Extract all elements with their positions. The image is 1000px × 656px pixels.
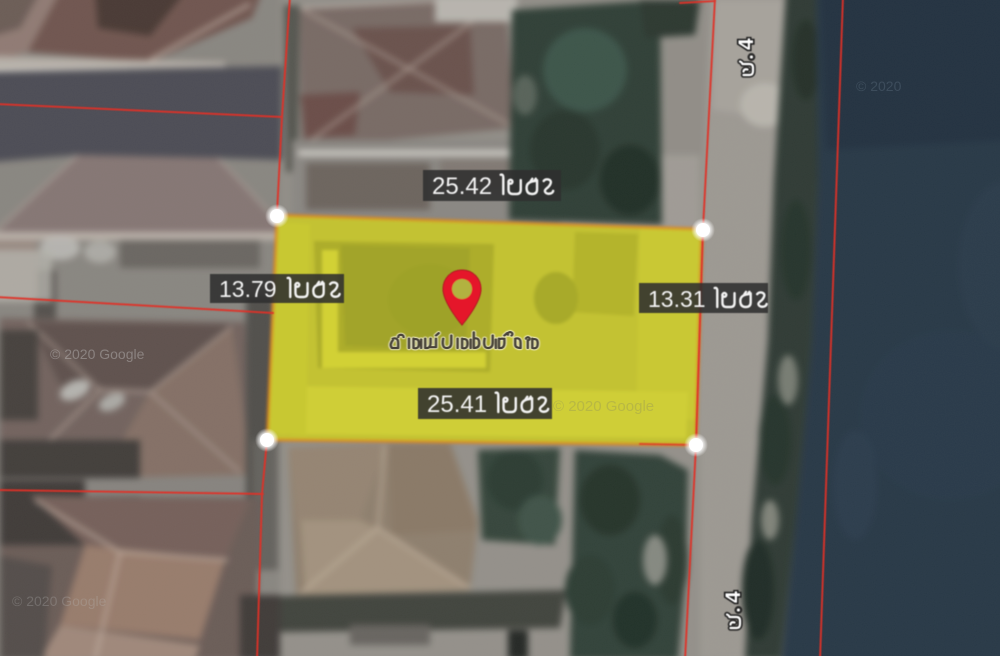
svg-text:13.79: 13.79 (219, 276, 277, 302)
svg-text:© 2020 Google: © 2020 Google (553, 398, 654, 415)
svg-text:© 2020 Google: © 2020 Google (50, 346, 145, 362)
svg-text:© 2020: © 2020 (856, 78, 902, 94)
svg-text:© 2020 Google: © 2020 Google (12, 593, 107, 609)
svg-text:13.31: 13.31 (648, 286, 706, 312)
svg-text:25.41: 25.41 (427, 391, 487, 418)
svg-text:25.42: 25.42 (432, 173, 492, 200)
